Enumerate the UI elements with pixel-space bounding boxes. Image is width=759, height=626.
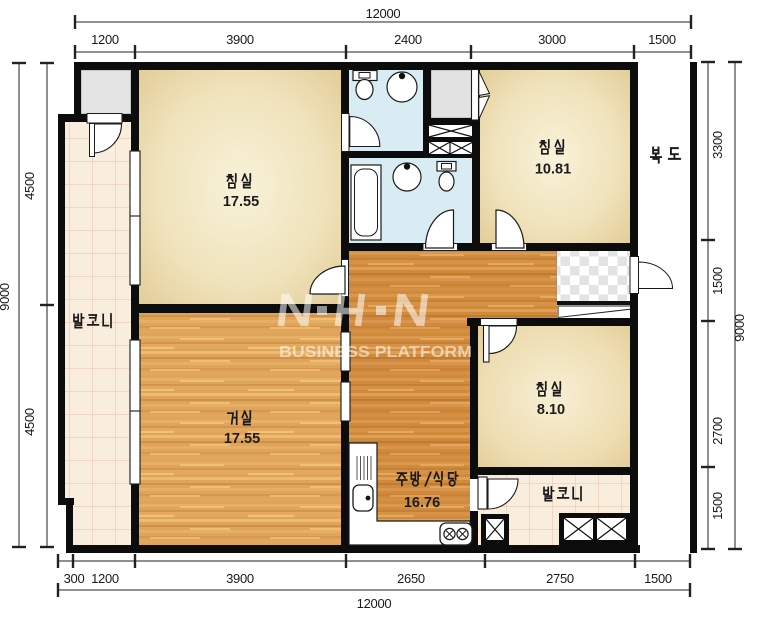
svg-text:12000: 12000 [366,6,401,21]
svg-text:1200: 1200 [91,32,119,47]
svg-text:17.55: 17.55 [223,194,259,210]
svg-text:10.81: 10.81 [535,162,571,178]
svg-text:17.55: 17.55 [224,431,260,447]
svg-text:2650: 2650 [397,571,425,586]
svg-text:2750: 2750 [546,571,574,586]
svg-text:3000: 3000 [538,32,566,47]
svg-text:8.10: 8.10 [537,402,565,418]
svg-text:3900: 3900 [226,571,254,586]
svg-text:1500: 1500 [710,492,725,520]
svg-text:9000: 9000 [0,283,12,311]
svg-text:300: 300 [64,571,85,586]
svg-text:1500: 1500 [710,267,725,295]
svg-text:12000: 12000 [357,596,392,611]
svg-text:1500: 1500 [644,571,672,586]
svg-text:2700: 2700 [710,417,725,445]
svg-text:3900: 3900 [226,32,254,47]
svg-text:4500: 4500 [22,408,37,436]
svg-text:BUSINESS PLATFORM: BUSINESS PLATFORM [279,344,472,361]
svg-text:4500: 4500 [22,172,37,200]
svg-text:16.76: 16.76 [404,495,440,511]
svg-text:1500: 1500 [648,32,676,47]
svg-text:2400: 2400 [394,32,422,47]
svg-text:9000: 9000 [732,314,747,342]
svg-text:3300: 3300 [710,131,725,159]
svg-text:1200: 1200 [91,571,119,586]
